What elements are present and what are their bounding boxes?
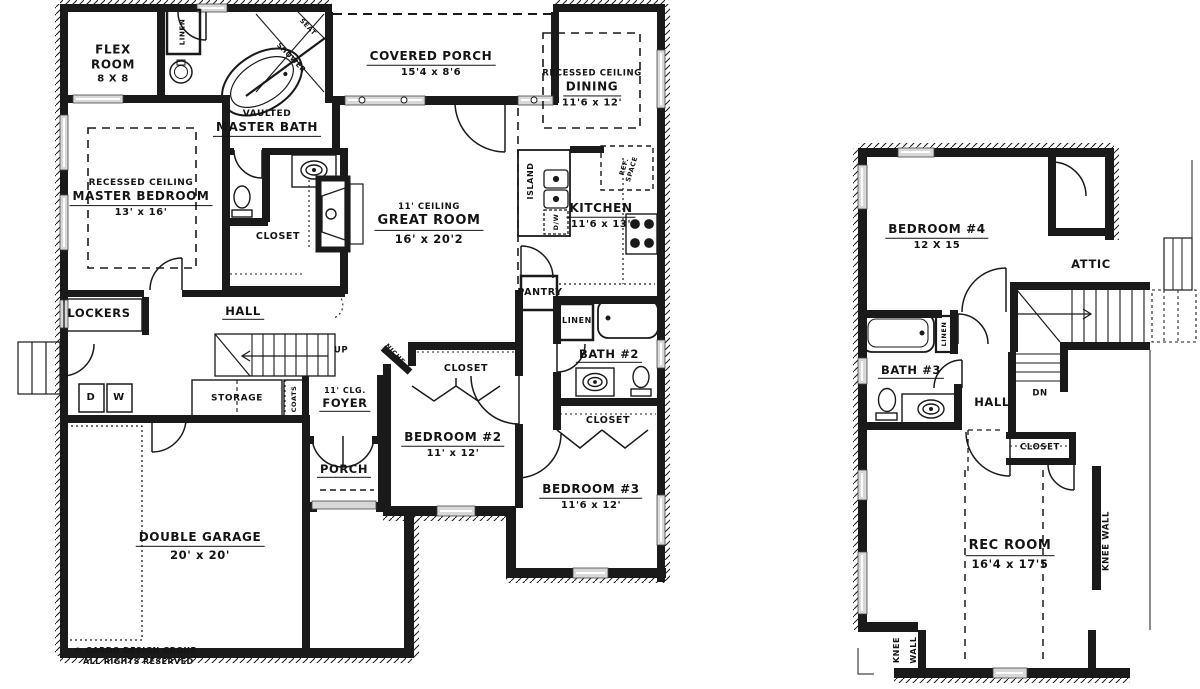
closet-upper-label: CLOSET [1020, 443, 1060, 454]
master-bath-label: VAULTED MASTER BATH [213, 109, 321, 137]
bedroom4-label: BEDROOM #4 12 X 15 [885, 222, 988, 253]
attic-label: ATTIC [1071, 257, 1111, 271]
toilet-bath2 [631, 367, 651, 397]
rec-room-label: REC ROOM 16'4 x 17'5 [966, 538, 1055, 572]
bifold-doors-bedroom2-closet [412, 378, 500, 401]
hall-upper-label: HALL [974, 395, 1010, 409]
garage-label: DOUBLE GARAGE 20' x 20' [136, 530, 265, 562]
hall-label: HALL [222, 304, 264, 320]
washer-label: W [113, 392, 125, 405]
knee-wall-right-label: KNEE WALL [1102, 511, 1113, 571]
linen-bath2-label: LINEN [562, 316, 592, 326]
dn-label: DN [1032, 389, 1047, 400]
covered-porch-label: COVERED PORCH 15'4 x 8'6 [367, 49, 496, 80]
dining-label: RECESSED CEILING DINING 11'6 x 12' [542, 68, 642, 109]
bedroom3-closet-label: CLOSET [586, 415, 630, 427]
porch-label: PORCH [317, 462, 371, 478]
great-room-label: 11' CEILING GREAT ROOM 16' x 20'2 [374, 202, 483, 246]
vanity-bath2 [576, 368, 614, 396]
linen-master-label: LINEN [179, 19, 188, 46]
stairs-main [215, 334, 335, 376]
lockers-label: LOCKERS [67, 306, 130, 320]
stairs-upper [1012, 284, 1144, 381]
bedroom3-label: BEDROOM #3 11'6 x 12' [539, 482, 642, 513]
master-closet-label: CLOSET [256, 231, 300, 243]
tub-bath3 [862, 314, 934, 352]
storage-label: STORAGE [211, 393, 263, 404]
toilet-master [232, 186, 252, 217]
foyer-label: 11' CLG. FOYER [319, 386, 370, 412]
fireplace [316, 176, 363, 252]
knee-wall-bottom-word2: WALL [909, 636, 919, 663]
dishwasher-label: D/W [552, 214, 560, 231]
toilet-bath3 [876, 389, 897, 421]
down-flight [1016, 354, 1060, 381]
pantry-label: PANTRY [517, 287, 562, 299]
pedestal-sink [170, 60, 192, 83]
master-bedroom-label: RECESSED CEILING MASTER BEDROOM 13' x 16… [70, 178, 213, 220]
flex-room-label: FLEX ROOM 8 X 8 [91, 42, 135, 86]
island-label: ISLAND [526, 163, 536, 200]
bifold-doors-bedroom3-closet [557, 430, 648, 448]
copyright-note: © GARDO DESIGN GROUP ALL RIGHTS RESERVED [74, 646, 197, 668]
up-label: UP [334, 346, 348, 357]
knee-wall-bottom-word1: KNEE [892, 637, 902, 663]
vanity-bath3 [902, 394, 960, 424]
dryer-label: D [87, 392, 96, 405]
bedroom2-label: BEDROOM #2 11' x 12' [401, 430, 504, 461]
bath3-label: BATH #3 [878, 363, 944, 379]
bedroom2-closet-label: CLOSET [444, 363, 488, 375]
kitchen-label: KITCHEN 11'6 x 13' [566, 201, 635, 232]
coats-label: COATS [290, 386, 298, 413]
entry-stoop [18, 342, 60, 394]
floor-plan-page: FLEX ROOM 8 X 8 LINEN SHOWER SEAT VAULTE… [0, 0, 1200, 689]
linen-upper-label: LINEN [940, 322, 948, 347]
tub-bath2 [598, 300, 658, 338]
bath2-label: BATH #2 [576, 347, 642, 363]
